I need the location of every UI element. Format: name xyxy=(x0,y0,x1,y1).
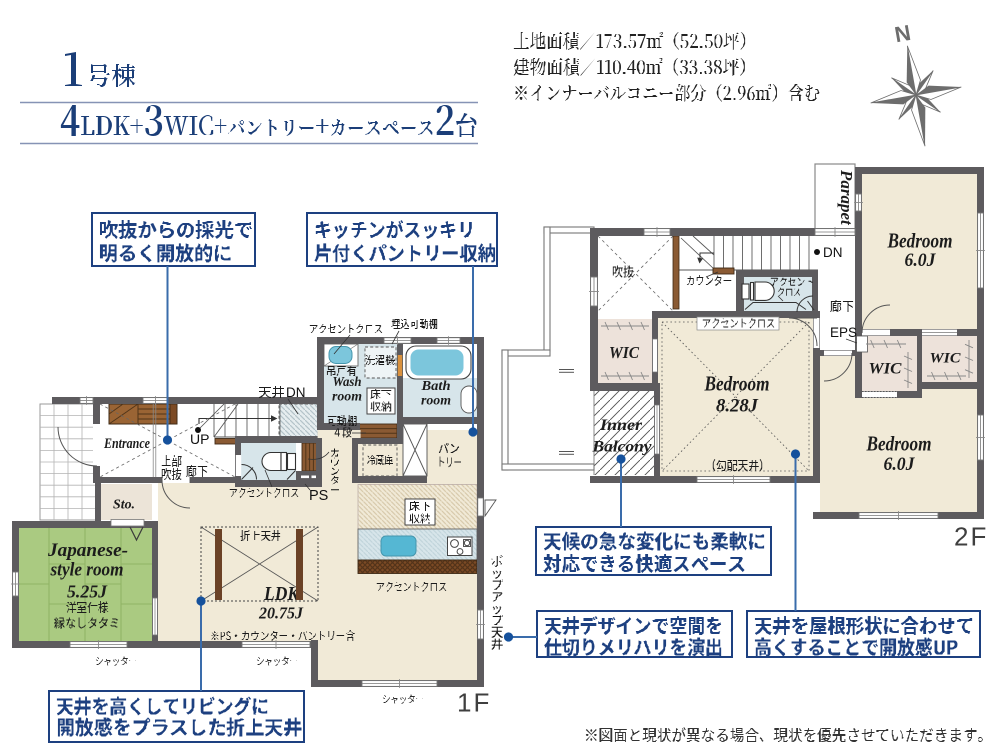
svg-text:6.0J: 6.0J xyxy=(884,454,915,475)
svg-text:Balcony: Balcony xyxy=(591,439,652,456)
svg-text:Inner: Inner xyxy=(599,417,643,434)
svg-text:Bedroom: Bedroom xyxy=(887,229,953,253)
svg-text:2F: 2F xyxy=(954,522,988,552)
svg-text:WIC: WIC xyxy=(609,343,640,362)
svg-text:Bedroom: Bedroom xyxy=(704,372,770,396)
svg-text:DN: DN xyxy=(286,385,306,400)
svg-text:Entrance: Entrance xyxy=(103,436,150,452)
svg-text:room: room xyxy=(421,394,451,409)
svg-text:1F: 1F xyxy=(457,688,491,718)
svg-text:EPS: EPS xyxy=(830,325,857,340)
svg-text:room: room xyxy=(332,390,362,405)
svg-text:WIC: WIC xyxy=(930,351,962,367)
svg-text:5.25J: 5.25J xyxy=(67,582,108,602)
svg-text:20.75J: 20.75J xyxy=(258,604,303,623)
svg-text:DN: DN xyxy=(823,245,843,260)
svg-text:8.28J: 8.28J xyxy=(716,396,758,417)
svg-text:Japanese-: Japanese- xyxy=(47,540,128,561)
svg-text:6.0J: 6.0J xyxy=(905,250,936,271)
svg-text:Wash: Wash xyxy=(333,375,362,390)
svg-text:Bath: Bath xyxy=(420,379,450,394)
svg-text:Parapet: Parapet xyxy=(837,169,856,226)
svg-text:UP: UP xyxy=(190,431,209,447)
svg-text:Bedroom: Bedroom xyxy=(866,432,932,456)
svg-text:WIC: WIC xyxy=(869,361,902,378)
svg-text:style room: style room xyxy=(50,560,124,581)
svg-text:PS: PS xyxy=(309,488,328,504)
svg-text:Sto.: Sto. xyxy=(113,497,135,512)
